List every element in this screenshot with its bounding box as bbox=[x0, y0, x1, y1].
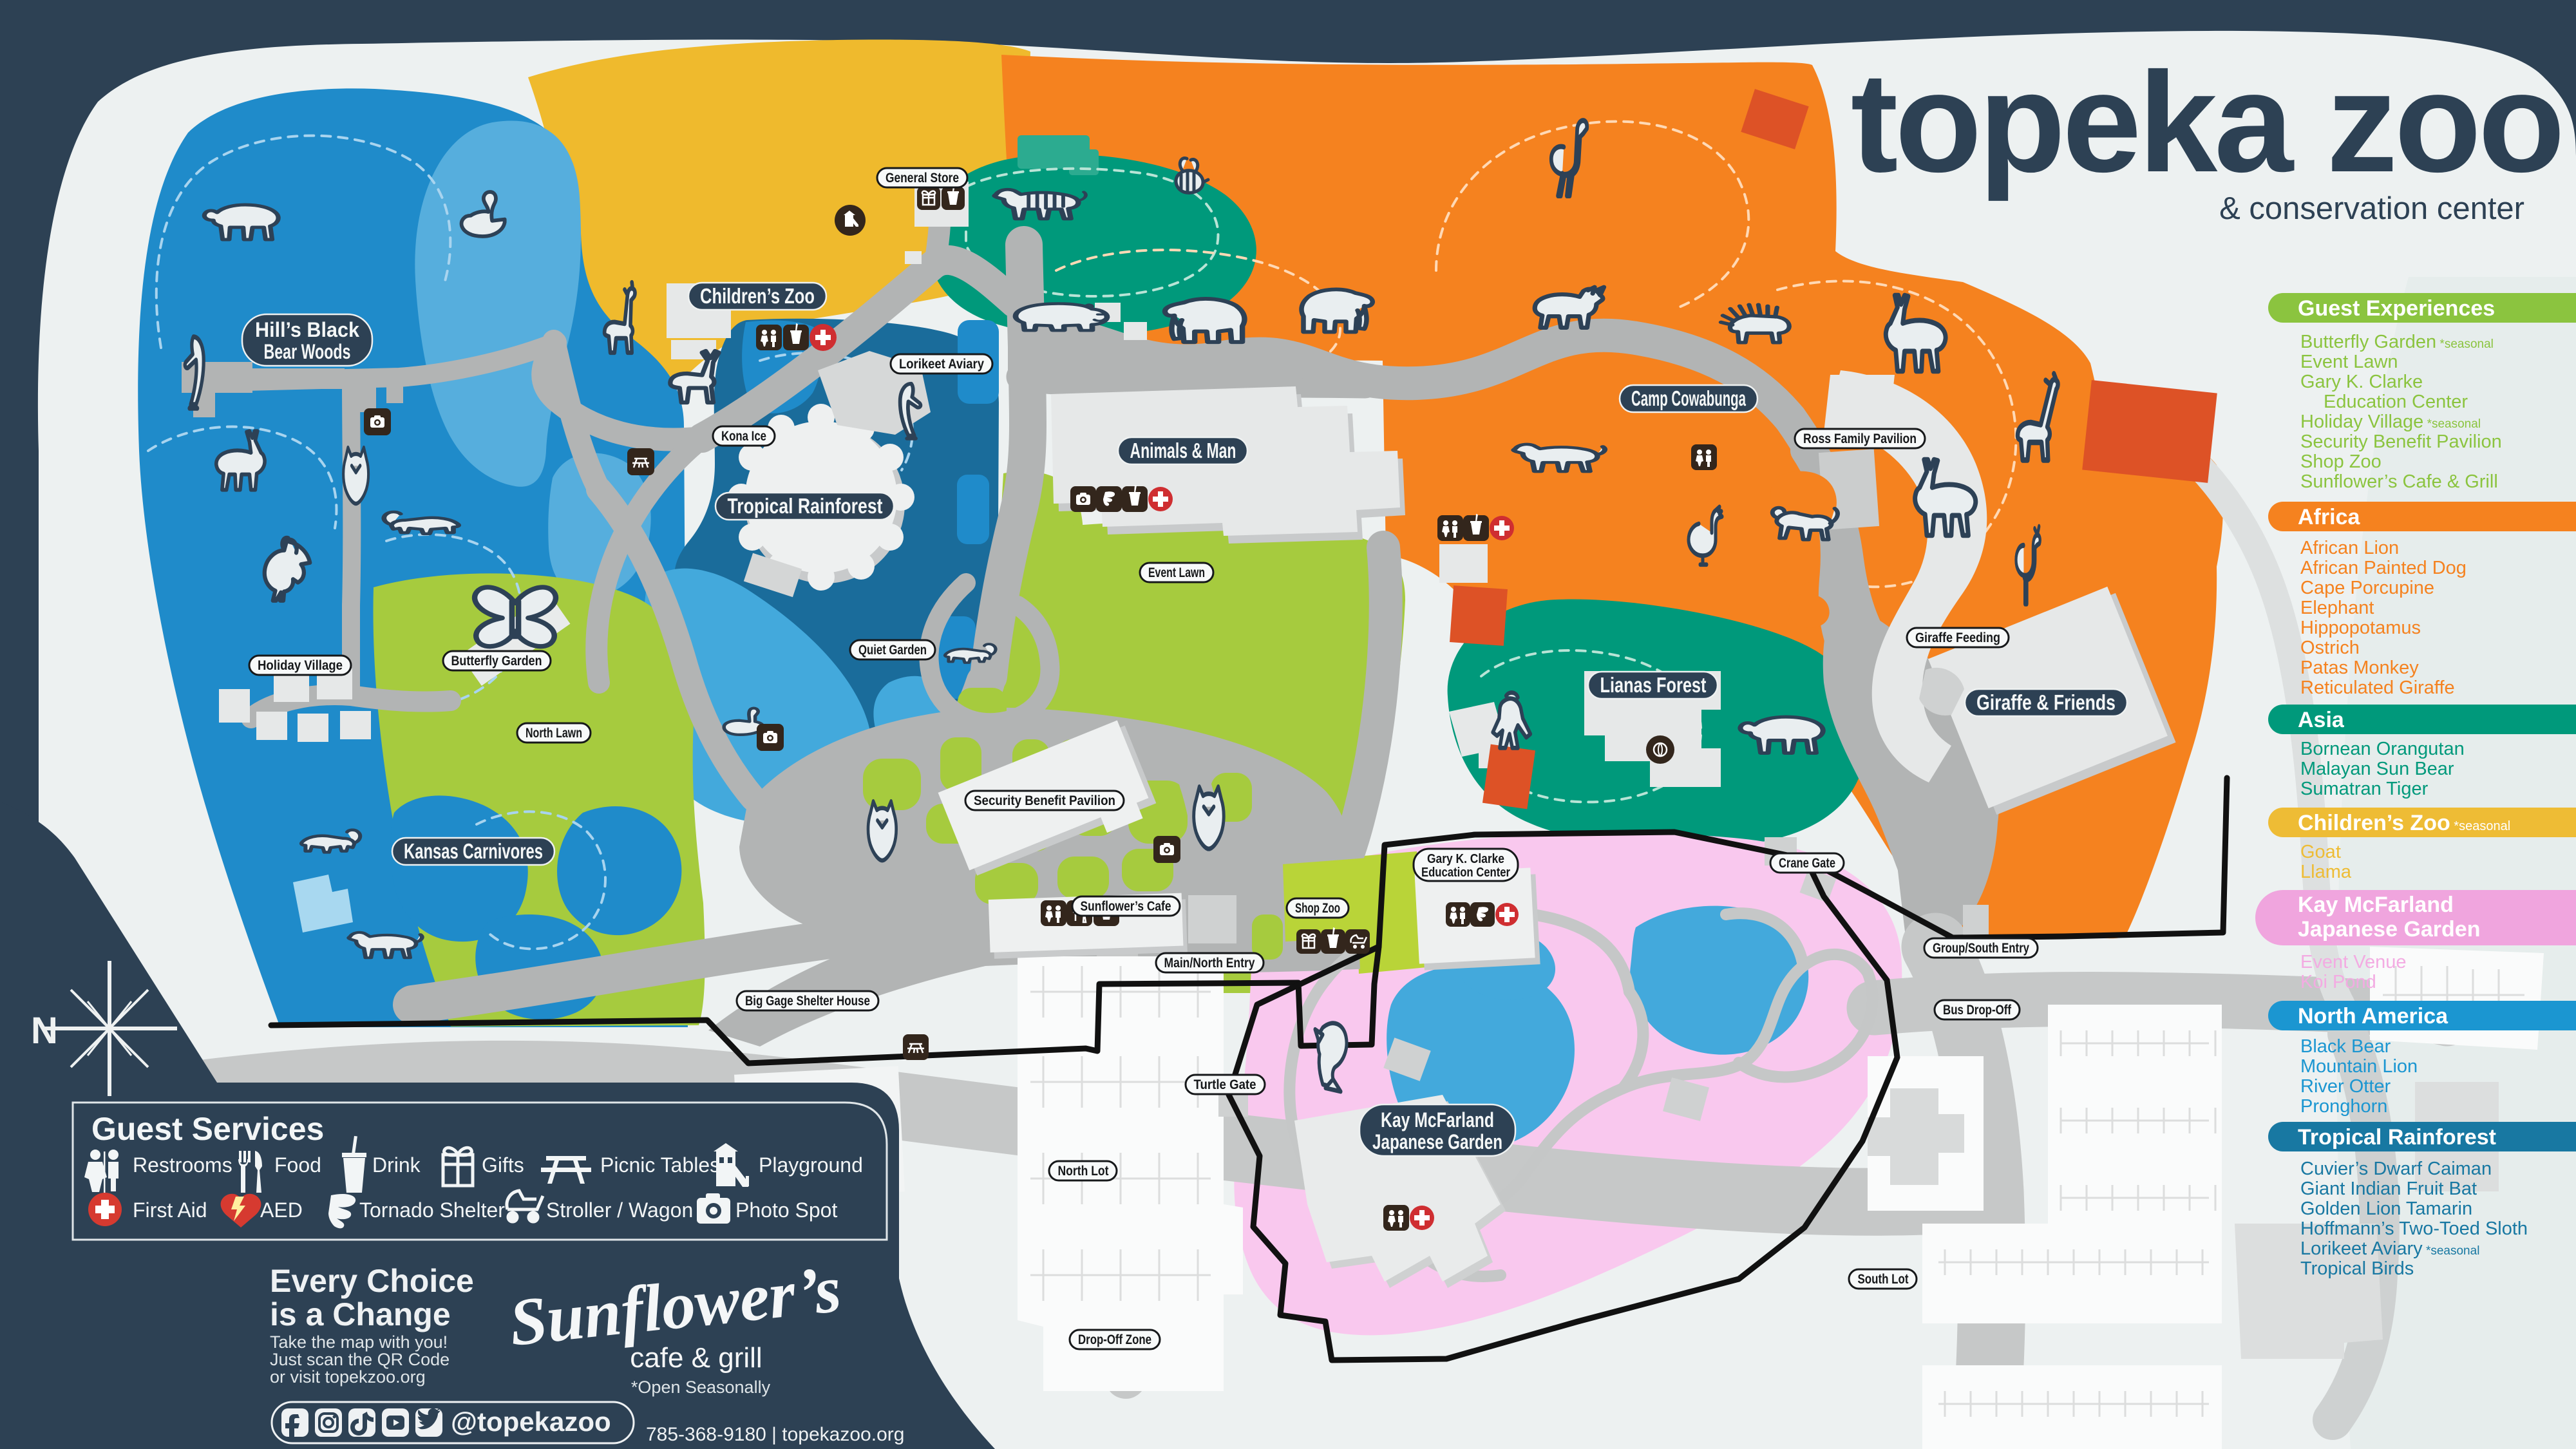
svg-text:Butterfly Garden: Butterfly Garden bbox=[451, 654, 542, 668]
svg-text:Children’s Zoo: Children’s Zoo bbox=[700, 284, 815, 308]
svg-text:& conservation center: & conservation center bbox=[2219, 191, 2524, 226]
svg-text:Ostrich: Ostrich bbox=[2300, 638, 2360, 658]
svg-text:Koi Pond: Koi Pond bbox=[2300, 972, 2376, 992]
svg-text:Asia: Asia bbox=[2298, 708, 2345, 732]
svg-text:Sunflower’s Cafe & Grill: Sunflower’s Cafe & Grill bbox=[2300, 471, 2498, 492]
svg-text:Africa: Africa bbox=[2298, 505, 2360, 529]
svg-text:AED: AED bbox=[260, 1198, 303, 1222]
svg-text:topeka zoo: topeka zoo bbox=[1851, 43, 2562, 202]
svg-text:Hill’s Black: Hill’s Black bbox=[255, 318, 359, 341]
svg-text:is a Change: is a Change bbox=[270, 1296, 451, 1332]
svg-text:Patas Monkey: Patas Monkey bbox=[2300, 658, 2419, 678]
svg-text:General Store: General Store bbox=[885, 171, 959, 185]
svg-text:Event Lawn: Event Lawn bbox=[2300, 352, 2398, 372]
svg-text:South Lot: South Lot bbox=[1858, 1272, 1909, 1287]
svg-text:Kona Ice: Kona Ice bbox=[721, 429, 766, 444]
svg-text:Llama: Llama bbox=[2300, 862, 2352, 882]
svg-text:North America: North America bbox=[2298, 1004, 2448, 1028]
svg-text:Photo Spot: Photo Spot bbox=[735, 1198, 837, 1222]
svg-text:Gary K. Clarke: Gary K. Clarke bbox=[1427, 852, 1504, 866]
svg-text:African Painted Dog: African Painted Dog bbox=[2300, 558, 2467, 578]
svg-text:Elephant: Elephant bbox=[2300, 598, 2374, 618]
svg-text:Reticulated Giraffe: Reticulated Giraffe bbox=[2300, 677, 2455, 698]
svg-text:Pronghorn: Pronghorn bbox=[2300, 1096, 2387, 1117]
svg-text:Bear Woods: Bear Woods bbox=[264, 340, 351, 363]
svg-text:cafe & grill: cafe & grill bbox=[630, 1342, 762, 1374]
svg-text:Sumatran Tiger: Sumatran Tiger bbox=[2300, 779, 2429, 799]
svg-text:*Open Seasonally: *Open Seasonally bbox=[631, 1378, 771, 1397]
svg-text:Playground: Playground bbox=[759, 1153, 863, 1177]
svg-text:Sunflower’s Cafe: Sunflower’s Cafe bbox=[1081, 899, 1171, 914]
svg-text:Bornean Orangutan: Bornean Orangutan bbox=[2300, 739, 2465, 759]
svg-text:Main/North Entry: Main/North Entry bbox=[1164, 956, 1255, 971]
svg-text:Turtle Gate: Turtle Gate bbox=[1194, 1077, 1256, 1092]
svg-text:Camp Cowabunga: Camp Cowabunga bbox=[1631, 386, 1746, 410]
svg-text:Tropical Rainforest: Tropical Rainforest bbox=[2298, 1125, 2496, 1150]
svg-text:Shop Zoo: Shop Zoo bbox=[2300, 451, 2382, 472]
svg-text:North Lot: North Lot bbox=[1058, 1164, 1109, 1179]
svg-text:Tornado Shelter: Tornado Shelter bbox=[359, 1198, 505, 1222]
svg-text:Restrooms: Restrooms bbox=[133, 1153, 232, 1177]
svg-text:Security Benefit Pavilion: Security Benefit Pavilion bbox=[974, 793, 1115, 808]
svg-text:African Lion: African Lion bbox=[2300, 538, 2399, 558]
svg-text:Shop Zoo: Shop Zoo bbox=[1295, 901, 1340, 916]
svg-text:Tropical Birds: Tropical Birds bbox=[2300, 1258, 2414, 1279]
svg-text:Every Choice: Every Choice bbox=[270, 1263, 474, 1299]
svg-text:Bus Drop-Off: Bus Drop-Off bbox=[1943, 1003, 2012, 1018]
svg-text:Kay McFarland: Kay McFarland bbox=[1381, 1108, 1494, 1132]
svg-text:Kansas Carnivores: Kansas Carnivores bbox=[404, 839, 543, 863]
svg-text:Hippopotamus: Hippopotamus bbox=[2300, 618, 2421, 638]
svg-text:Holiday Village: Holiday Village bbox=[258, 658, 343, 673]
svg-text:Golden Lion Tamarin: Golden Lion Tamarin bbox=[2300, 1198, 2472, 1219]
svg-text:Group/South Entry: Group/South Entry bbox=[1933, 941, 2029, 956]
svg-text:Cuvier’s Dwarf Caiman: Cuvier’s Dwarf Caiman bbox=[2300, 1159, 2492, 1179]
svg-text:Giraffe & Friends: Giraffe & Friends bbox=[1976, 690, 2116, 714]
svg-text:Take the map with you!: Take the map with you! bbox=[270, 1332, 448, 1352]
svg-text:Education Center: Education Center bbox=[1421, 866, 1510, 880]
svg-text:Big Gage Shelter House: Big Gage Shelter House bbox=[745, 994, 870, 1009]
svg-text:Education Center: Education Center bbox=[2324, 392, 2468, 412]
svg-text:Guest Services: Guest Services bbox=[91, 1111, 324, 1147]
svg-text:785-368-9180 | topekazoo.org: 785-368-9180 | topekazoo.org bbox=[646, 1424, 904, 1445]
svg-text:Malayan Sun Bear: Malayan Sun Bear bbox=[2300, 759, 2454, 779]
svg-text:Drink: Drink bbox=[372, 1153, 421, 1177]
svg-text:Tropical Rainforest: Tropical Rainforest bbox=[728, 494, 883, 518]
svg-text:Event Venue: Event Venue bbox=[2300, 952, 2406, 972]
svg-text:Lorikeet Aviary: Lorikeet Aviary bbox=[899, 357, 984, 372]
svg-text:or visit topekzoo.org: or visit topekzoo.org bbox=[270, 1367, 426, 1387]
svg-text:Giraffe Feeding: Giraffe Feeding bbox=[1915, 630, 2000, 645]
svg-text:Goat: Goat bbox=[2300, 842, 2341, 862]
svg-text:Quiet Garden: Quiet Garden bbox=[858, 643, 927, 658]
svg-text:Stroller / Wagon: Stroller / Wagon bbox=[546, 1198, 693, 1222]
svg-text:Japanese Garden: Japanese Garden bbox=[1372, 1130, 1502, 1153]
svg-text:Japanese Garden: Japanese Garden bbox=[2298, 917, 2480, 942]
svg-text:River Otter: River Otter bbox=[2300, 1076, 2391, 1097]
svg-text:Food: Food bbox=[274, 1153, 321, 1177]
svg-text:N: N bbox=[31, 1010, 58, 1052]
svg-text:Black Bear: Black Bear bbox=[2300, 1036, 2391, 1057]
svg-text:Event Lawn: Event Lawn bbox=[1148, 565, 1205, 580]
svg-text:Ross Family Pavilion: Ross Family Pavilion bbox=[1803, 431, 1917, 446]
svg-text:Animals & Man: Animals & Man bbox=[1130, 439, 1236, 462]
svg-text:Gary K. Clarke: Gary K. Clarke bbox=[2300, 372, 2423, 392]
svg-text:@topekazoo: @topekazoo bbox=[451, 1406, 611, 1437]
svg-text:Gifts: Gifts bbox=[482, 1153, 524, 1177]
svg-text:North Lawn: North Lawn bbox=[526, 726, 582, 741]
svg-text:Giant Indian Fruit Bat: Giant Indian Fruit Bat bbox=[2300, 1179, 2477, 1199]
svg-text:Cape Porcupine: Cape Porcupine bbox=[2300, 578, 2434, 598]
svg-text:Security Benefit Pavilion: Security Benefit Pavilion bbox=[2300, 431, 2502, 452]
svg-text:Guest Experiences: Guest Experiences bbox=[2298, 296, 2495, 321]
svg-text:Kay McFarland: Kay McFarland bbox=[2298, 893, 2454, 917]
svg-text:Lianas Forest: Lianas Forest bbox=[1600, 673, 1707, 697]
svg-text:Just scan the QR Code: Just scan the QR Code bbox=[270, 1350, 450, 1369]
svg-text:Mountain Lion: Mountain Lion bbox=[2300, 1056, 2418, 1077]
svg-text:Hoffmann’s Two-Toed Sloth: Hoffmann’s Two-Toed Sloth bbox=[2300, 1218, 2528, 1239]
svg-text:Crane Gate: Crane Gate bbox=[1779, 856, 1835, 871]
svg-text:First Aid: First Aid bbox=[133, 1198, 207, 1222]
svg-text:Picnic Tables: Picnic Tables bbox=[600, 1153, 720, 1177]
svg-text:Drop-Off Zone: Drop-Off Zone bbox=[1078, 1332, 1151, 1347]
